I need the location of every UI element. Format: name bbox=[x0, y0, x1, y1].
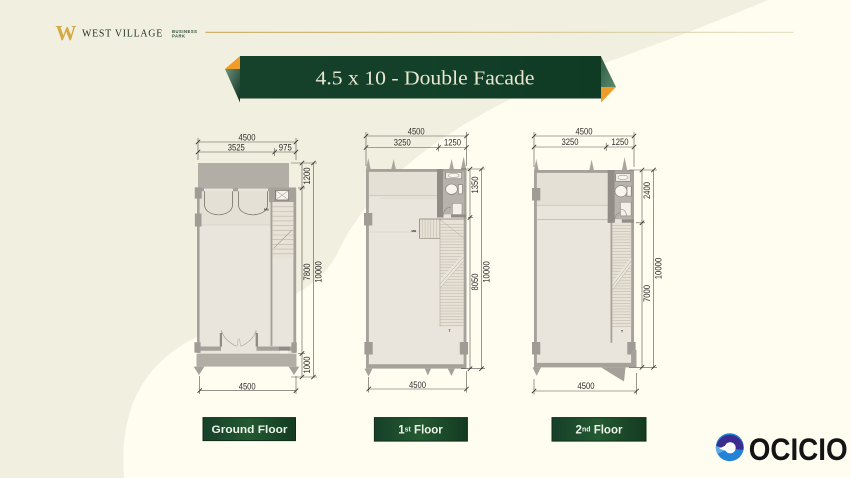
svg-text:4500: 4500 bbox=[239, 381, 256, 392]
svg-text:4.5 x 10 - Double Facade: 4.5 x 10 - Double Facade bbox=[316, 68, 535, 90]
svg-text:1350: 1350 bbox=[470, 177, 481, 194]
svg-text:4500: 4500 bbox=[578, 381, 595, 392]
svg-text:PARK: PARK bbox=[172, 34, 186, 39]
svg-text:7000: 7000 bbox=[642, 285, 653, 302]
svg-text:2400: 2400 bbox=[642, 182, 653, 199]
svg-text:1000: 1000 bbox=[302, 357, 313, 374]
svg-text:WEST VILLAGE: WEST VILLAGE bbox=[82, 29, 163, 40]
svg-text:10000: 10000 bbox=[653, 258, 664, 280]
svg-text:3250: 3250 bbox=[394, 138, 411, 149]
svg-text:OCICIO: OCICIO bbox=[749, 431, 848, 467]
svg-text:8050: 8050 bbox=[470, 274, 481, 291]
svg-text:4500: 4500 bbox=[409, 380, 426, 391]
svg-text:1200: 1200 bbox=[302, 168, 313, 185]
svg-text:4500: 4500 bbox=[408, 126, 425, 137]
svg-text:10000: 10000 bbox=[482, 261, 493, 283]
svg-text:Ground Floor: Ground Floor bbox=[212, 424, 289, 436]
svg-text:3250: 3250 bbox=[562, 137, 579, 148]
svg-text:975: 975 bbox=[279, 142, 292, 153]
svg-text:1250: 1250 bbox=[444, 138, 461, 149]
svg-text:W: W bbox=[56, 21, 77, 45]
svg-text:10000: 10000 bbox=[313, 261, 324, 283]
svg-text:3525: 3525 bbox=[228, 142, 245, 153]
svg-text:1250: 1250 bbox=[612, 137, 629, 148]
svg-text:7800: 7800 bbox=[302, 264, 313, 281]
svg-text:4500: 4500 bbox=[576, 126, 593, 137]
